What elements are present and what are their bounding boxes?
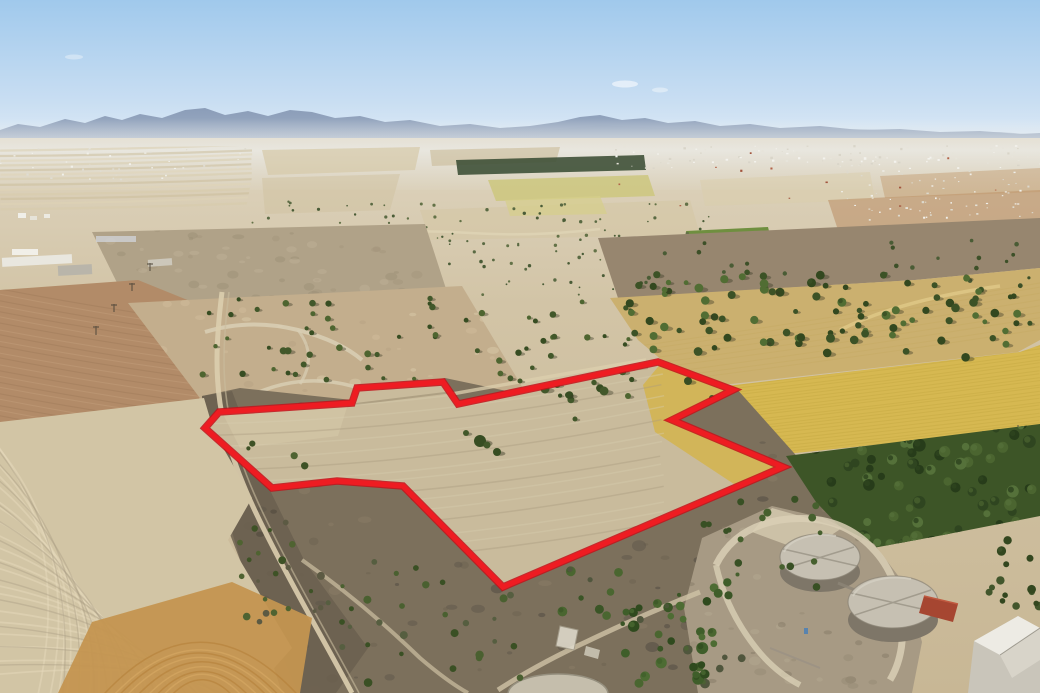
town-building — [144, 153, 146, 154]
olive-tree — [225, 336, 229, 340]
town-building — [201, 167, 202, 168]
town-building — [89, 178, 90, 179]
scrub-mottle — [569, 666, 576, 669]
ground-mottle — [824, 630, 832, 634]
town-building — [871, 210, 872, 211]
town-building — [854, 205, 856, 206]
olive-tree-distant — [517, 244, 519, 246]
scrub-bush — [271, 609, 278, 616]
town-building — [726, 159, 729, 161]
town-building — [211, 167, 213, 169]
olive-tree-distant — [579, 220, 582, 223]
green-tree-cluster — [689, 663, 698, 672]
town-building — [946, 217, 948, 219]
ground-mottle — [490, 356, 495, 360]
ground-mottle — [288, 341, 296, 347]
town-building — [928, 158, 931, 160]
town-building — [872, 198, 874, 199]
town-building — [706, 161, 707, 162]
ground-mottle — [428, 375, 433, 377]
scrub-bush-crown — [998, 547, 1003, 552]
town-building — [671, 167, 672, 168]
town-building — [879, 156, 882, 158]
scrub-bush — [724, 591, 732, 599]
town-building — [938, 159, 940, 161]
orchard-tree-crown — [914, 440, 920, 446]
ground-mottle — [466, 328, 477, 334]
olive-tree — [375, 352, 380, 357]
olive-tree-distant — [599, 218, 601, 220]
town-building — [1017, 165, 1020, 166]
town-building — [910, 209, 912, 210]
town-building — [919, 180, 921, 181]
scrub-mottle — [315, 601, 326, 606]
town-building — [657, 153, 659, 154]
scrub-bush — [736, 573, 740, 577]
scrub-bush — [339, 644, 345, 650]
ground-mottle — [799, 612, 804, 614]
distant-field — [262, 174, 400, 214]
olive-tree-distant — [433, 215, 436, 218]
town-building — [168, 161, 170, 162]
town-building — [869, 185, 871, 186]
olive-tree-distant — [647, 221, 649, 223]
green-tree-cluster — [668, 613, 675, 620]
olive-tree — [728, 291, 736, 299]
town-building — [71, 166, 73, 168]
olive-tree-distant — [555, 250, 557, 252]
town-building — [755, 146, 756, 147]
scrub-mottle — [661, 556, 670, 560]
olive-tree — [524, 346, 528, 350]
olive-tree — [769, 288, 776, 295]
scrub-bush — [811, 558, 817, 564]
olive-tree — [745, 262, 749, 266]
scrub-bush — [492, 617, 496, 621]
olive-tree — [650, 283, 657, 290]
olive-tree-distant — [384, 215, 387, 218]
olive-tree-distant — [485, 208, 488, 211]
olive-tree — [397, 335, 401, 339]
orchard-tree — [867, 455, 876, 464]
olive-tree — [880, 272, 887, 279]
town-building — [770, 157, 773, 160]
scrub-bush — [463, 620, 469, 626]
olive-tree — [301, 362, 307, 368]
scrub-mottle — [354, 677, 358, 679]
town-building — [754, 161, 756, 163]
scrub-bush — [511, 643, 518, 650]
olive-tree — [910, 265, 915, 270]
town-building — [901, 173, 902, 174]
town-building — [850, 153, 851, 154]
olive-tree-distant — [289, 205, 291, 207]
scrub-bush — [239, 574, 245, 580]
olive-tree — [694, 347, 703, 356]
scrub-bush — [1002, 592, 1008, 598]
olive-tree-distant — [553, 278, 556, 281]
olive-tree-distant — [699, 228, 702, 231]
olive-tree-distant — [267, 217, 270, 220]
scrub-bush — [808, 514, 816, 522]
olive-tree — [660, 323, 668, 331]
ground-mottle — [244, 381, 254, 388]
scrub-bush — [252, 525, 258, 531]
olive-tree — [427, 325, 432, 330]
olive-tree-distant — [432, 204, 435, 207]
olive-tree — [239, 371, 245, 377]
olive-tree-distant — [492, 259, 495, 262]
olive-tree — [684, 280, 689, 285]
town-building — [82, 169, 84, 171]
olive-tree — [889, 332, 896, 339]
scrub-bush — [737, 498, 744, 505]
village-building — [966, 206, 968, 207]
town-building — [853, 145, 855, 147]
olive-tree-distant — [540, 205, 543, 208]
town-building — [943, 180, 945, 182]
olive-tree — [990, 335, 996, 341]
town-building — [864, 157, 867, 160]
olive-tree — [663, 251, 667, 255]
olive-tree — [936, 257, 939, 260]
scrub-bush — [348, 625, 352, 629]
town-building — [182, 167, 184, 168]
olive-tree — [1008, 294, 1013, 299]
olive-tree-distant — [479, 260, 483, 264]
town-building — [851, 165, 853, 166]
olive-tree-distant — [612, 288, 614, 290]
town-building — [954, 177, 955, 178]
town-building — [950, 209, 952, 211]
soil-mottle — [394, 271, 399, 274]
orchard-tree-crown — [864, 480, 870, 486]
scrub-bush — [371, 559, 377, 565]
scrub-mottle — [538, 580, 551, 586]
green-tree-cluster — [676, 602, 685, 611]
town-building — [942, 188, 944, 189]
orchard-tree-crown — [845, 463, 850, 468]
olive-tree — [760, 272, 767, 279]
soil-mottle — [330, 288, 336, 291]
cloud — [65, 55, 83, 60]
town-building — [1019, 190, 1021, 192]
ground-mottle — [372, 335, 380, 340]
olive-tree — [892, 306, 900, 314]
ground-mottle — [359, 320, 366, 324]
olive-tree — [1027, 321, 1032, 326]
town-building — [911, 182, 912, 183]
orchard-tree-crown — [971, 444, 977, 450]
town-building — [762, 150, 764, 152]
town-roof — [715, 167, 717, 168]
house — [18, 213, 26, 218]
aerial-photo-canvas — [0, 0, 1040, 693]
scrub-bush — [722, 655, 728, 661]
olive-tree — [1018, 283, 1023, 288]
olive-tree — [479, 310, 485, 316]
olive-tree-distant — [562, 218, 566, 222]
olive-tree-distant — [585, 234, 588, 237]
scrub-bush — [787, 563, 795, 571]
town-building — [946, 146, 948, 147]
town-building — [872, 160, 874, 161]
olive-tree — [284, 347, 291, 354]
olive-tree — [712, 345, 718, 351]
olive-tree-distant — [448, 239, 451, 242]
orchard-tree-crown — [986, 455, 991, 460]
town-building — [958, 181, 959, 182]
town-building — [0, 163, 1, 164]
scrub-mottle — [454, 562, 462, 568]
olive-tree-distant — [542, 283, 544, 285]
olive-tree — [894, 264, 899, 269]
village-building — [905, 207, 908, 209]
town-building — [1015, 203, 1017, 204]
olive-tree-distant — [595, 220, 598, 223]
olive-tree — [307, 352, 313, 358]
ground-mottle — [302, 389, 307, 392]
olive-tree-distant — [392, 215, 395, 218]
town-building — [890, 199, 891, 200]
olive-tree — [433, 332, 439, 338]
town-building — [847, 171, 849, 173]
olive-tree — [695, 284, 704, 293]
scrub-bush — [318, 605, 323, 610]
scrub-bush — [256, 579, 260, 583]
scrub-bush — [614, 568, 623, 577]
scrub-bush — [1033, 601, 1039, 607]
olive-tree — [760, 279, 769, 288]
town-building — [218, 176, 219, 177]
town-building — [14, 155, 16, 156]
olive-tree — [697, 250, 702, 255]
town-building — [823, 158, 825, 160]
town-building — [1007, 152, 1009, 154]
scrub-bush — [500, 594, 508, 602]
olive-tree — [720, 275, 728, 283]
scrub-bush — [263, 610, 270, 617]
town-building — [1002, 195, 1004, 196]
town-building — [631, 166, 632, 167]
town-roof — [826, 182, 828, 184]
town-building — [869, 170, 870, 171]
scrub-bush — [363, 596, 371, 604]
ground-mottle — [704, 612, 712, 616]
town-building — [939, 199, 940, 200]
orchard-tree-crown — [890, 512, 895, 517]
olive-tree — [381, 376, 385, 380]
scrub-bush — [1012, 602, 1020, 610]
scrub-mottle — [385, 674, 395, 680]
soil-mottle — [304, 283, 315, 291]
soil-mottle — [313, 278, 322, 282]
soil-mottle — [173, 251, 183, 257]
olive-tree — [816, 271, 825, 280]
olive-tree-distant — [452, 233, 454, 235]
soil-mottle — [140, 248, 144, 251]
town-building — [782, 151, 783, 152]
town-building — [186, 149, 187, 150]
olive-tree-distant — [512, 207, 515, 210]
olive-tree-distant — [582, 253, 584, 255]
olive-tree — [200, 371, 206, 377]
olive-tree-distant — [614, 235, 616, 237]
olive-tree — [629, 377, 634, 382]
olive-tree — [783, 329, 791, 337]
ground-mottle — [163, 301, 172, 308]
scrub-bush — [365, 642, 370, 647]
ground-mottle — [754, 668, 766, 675]
scrub-mottle — [602, 663, 607, 666]
scrub-bush — [451, 629, 459, 637]
olive-tree — [903, 348, 910, 355]
orchard-tree-crown — [863, 474, 868, 479]
town-building — [807, 146, 809, 147]
scrub-mottle — [309, 538, 319, 546]
olive-tree — [1002, 328, 1008, 334]
olive-tree-distant — [567, 262, 570, 265]
scrub-bush-crown — [664, 604, 669, 609]
town-building — [886, 158, 887, 159]
olive-tree-distant — [618, 235, 621, 238]
olive-tree — [677, 328, 682, 333]
green-tree-cluster — [667, 637, 675, 645]
olive-tree — [972, 312, 979, 319]
town-building — [926, 193, 928, 195]
town-building — [1018, 160, 1020, 161]
scrub-mottle — [443, 607, 448, 610]
soil-mottle — [286, 246, 296, 252]
village-building — [919, 210, 920, 211]
town-building — [120, 179, 122, 181]
scrub-bush — [602, 611, 611, 620]
olive-tree — [974, 266, 979, 271]
green-tree-cluster — [699, 634, 706, 641]
town-building — [974, 191, 976, 192]
olive-tree-distant — [448, 263, 451, 266]
town-building — [150, 152, 152, 153]
olive-tree — [427, 296, 432, 301]
orchard-tree-crown — [908, 460, 913, 465]
town-building — [950, 202, 952, 204]
green-tree-cluster — [636, 604, 643, 611]
olive-tree — [540, 338, 546, 344]
town-building — [909, 168, 911, 169]
town-building — [710, 146, 712, 147]
ground-mottle — [487, 347, 499, 354]
soil-mottle — [339, 245, 344, 248]
scrub-bush — [595, 605, 604, 614]
olive-tree — [850, 336, 859, 345]
soil-mottle — [254, 269, 263, 273]
olive-tree-distant — [604, 229, 606, 231]
town-building — [807, 162, 808, 163]
scrub-bush — [567, 566, 573, 572]
olive-tree — [812, 292, 820, 300]
soil-mottle — [189, 251, 199, 255]
olive-tree — [324, 377, 330, 383]
town-building — [837, 163, 839, 165]
town-building — [986, 203, 988, 204]
town-building — [116, 175, 117, 176]
town-building — [841, 191, 843, 192]
town-building — [871, 163, 873, 165]
orchard-tree-crown — [829, 499, 834, 504]
orchard-tree-crown — [1005, 500, 1011, 506]
olive-tree — [662, 287, 668, 293]
scrub-bush — [637, 616, 644, 623]
orchard-tree — [944, 477, 952, 485]
town-building — [796, 151, 798, 153]
soil-mottle — [227, 271, 238, 279]
town-building — [922, 201, 924, 203]
town-roof — [789, 198, 791, 199]
olive-tree — [946, 317, 953, 324]
town-building — [874, 161, 875, 162]
orchard-tree-crown — [952, 484, 957, 489]
olive-tree — [858, 313, 865, 320]
town-building — [916, 173, 917, 174]
green-tree-cluster — [710, 640, 717, 647]
ground-mottle — [784, 658, 790, 662]
town-building — [876, 157, 878, 159]
town-building — [793, 151, 794, 152]
town-building — [898, 215, 900, 217]
olive-tree — [558, 394, 562, 398]
scrub-bush — [349, 606, 354, 611]
olive-tree — [991, 309, 1000, 318]
green-tree-cluster-crown — [657, 658, 663, 664]
scrub-mottle — [408, 620, 418, 626]
town-building — [615, 149, 617, 151]
scrub-bush — [475, 651, 483, 659]
town-building — [50, 178, 52, 180]
green-tree-cluster — [698, 661, 705, 668]
olive-tree — [823, 349, 832, 358]
town-building — [957, 167, 959, 169]
scrub-bush — [286, 565, 291, 570]
town-building — [62, 174, 64, 176]
concrete-ruin — [556, 626, 578, 650]
town-building — [1017, 148, 1019, 149]
town-building — [786, 160, 788, 162]
olive-tree — [969, 298, 978, 307]
scrub-bush — [340, 584, 344, 588]
scrub-bush-crown — [708, 629, 713, 634]
scrub-mottle — [370, 643, 377, 647]
town-building — [808, 154, 809, 155]
olive-tree-distant — [449, 243, 451, 245]
scrub-bush — [243, 613, 251, 621]
scrub-bush — [286, 606, 291, 611]
olive-tree — [207, 311, 212, 316]
town-building — [693, 162, 695, 163]
soil-mottle — [272, 236, 280, 242]
scrub-mottle — [668, 664, 678, 670]
olive-tree — [666, 280, 671, 285]
village-building — [987, 207, 988, 208]
ground-mottle — [751, 652, 756, 654]
scrub-bush — [400, 631, 408, 639]
scrub-bush — [620, 621, 625, 626]
orchard-tree-crown — [969, 488, 974, 493]
town-building — [129, 163, 131, 165]
olive-tree — [653, 271, 660, 278]
olive-tree — [840, 328, 845, 333]
olive-tree-distant — [407, 217, 409, 219]
olive-tree-distant — [653, 216, 656, 219]
